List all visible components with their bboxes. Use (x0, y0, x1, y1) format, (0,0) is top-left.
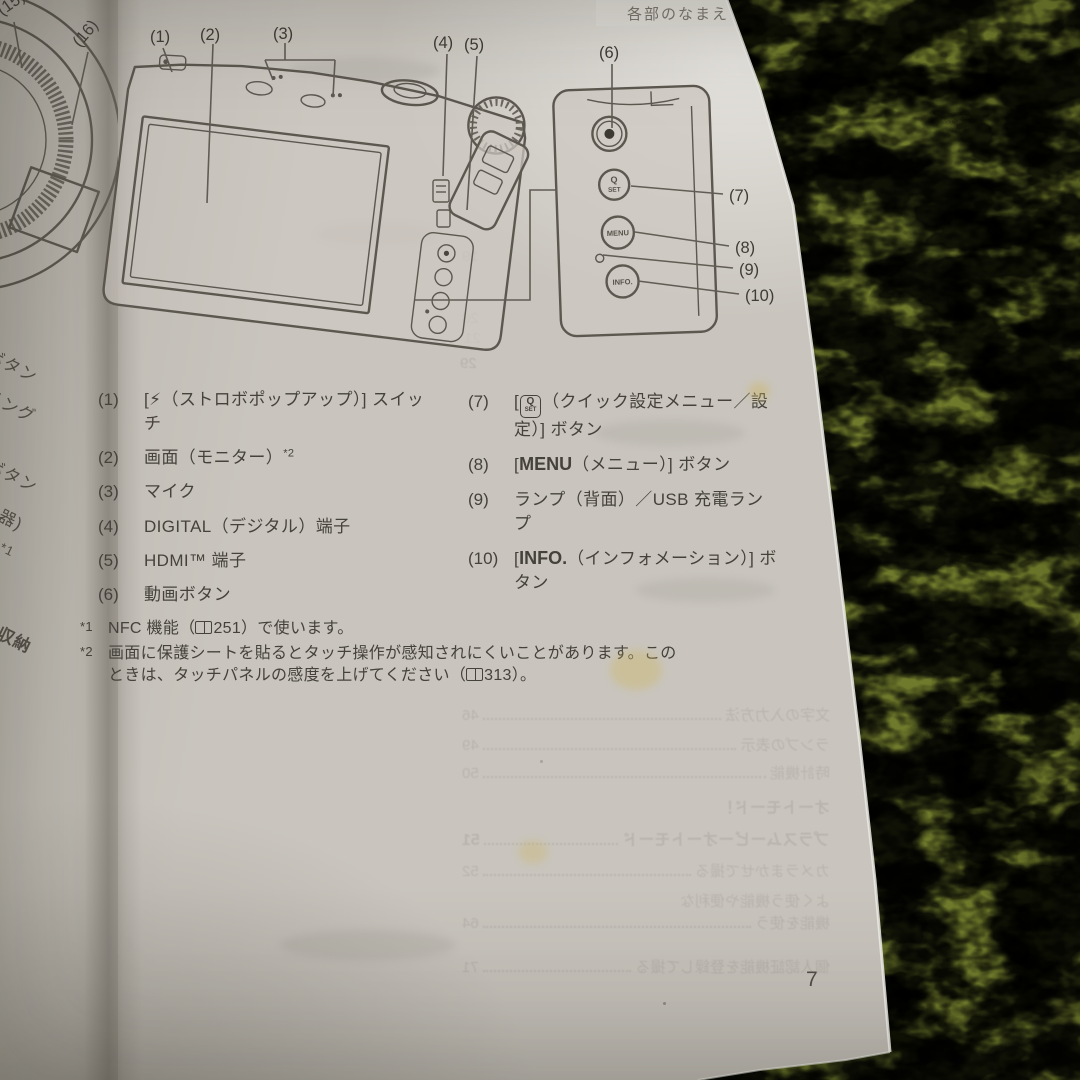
photo-of-manual-page: (15) (16) ボタン リング ボタン 機器) *1 ー収納 19 20 2… (0, 0, 1080, 1080)
